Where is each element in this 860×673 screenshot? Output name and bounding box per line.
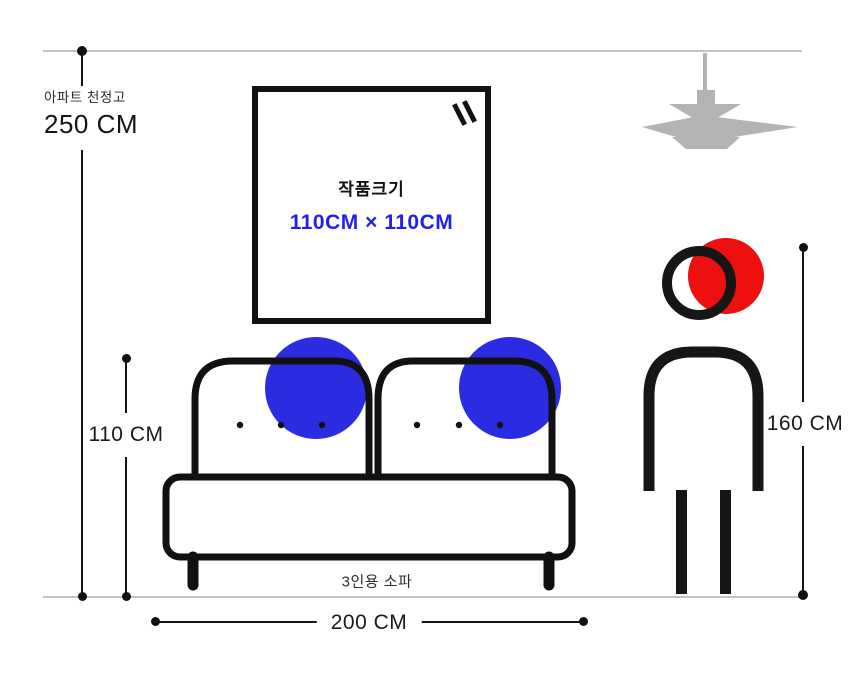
sofa-type-label: 3인용 소파 bbox=[342, 571, 413, 592]
ceiling-height-label-block: 아파트 천정고 250 CM bbox=[44, 86, 144, 150]
sofa-illustration bbox=[166, 337, 572, 585]
room-size-guide: 아파트 천정고 250 CM 110 CM 160 CM 200 CM 작품크기… bbox=[0, 0, 860, 673]
pendant-lamp-icon bbox=[642, 53, 798, 149]
ceiling-height-value: 250 CM bbox=[44, 109, 138, 140]
person-height-value: 160 CM bbox=[764, 402, 847, 446]
person-illustration bbox=[649, 238, 764, 594]
sofa-width-value: 200 CM bbox=[317, 609, 422, 637]
ceiling-height-caption: 아파트 천정고 bbox=[44, 86, 138, 106]
sofa-height-value: 110 CM bbox=[86, 413, 167, 457]
sofa-accent-circle-right bbox=[459, 337, 561, 439]
